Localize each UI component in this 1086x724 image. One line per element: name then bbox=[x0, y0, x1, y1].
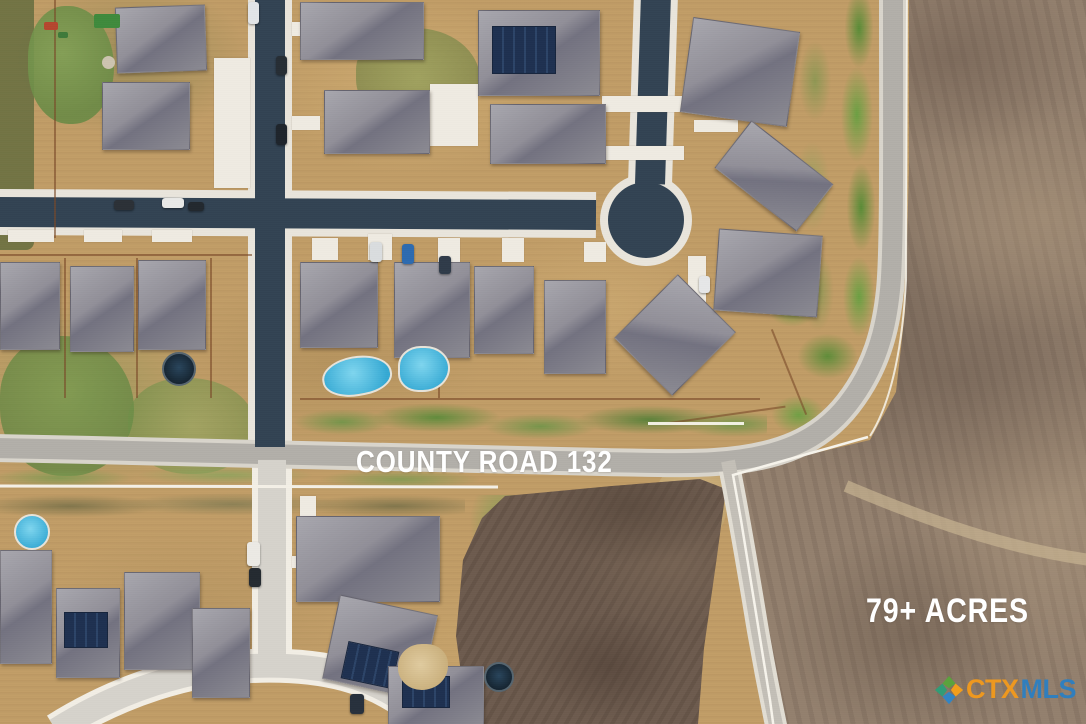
car bbox=[439, 256, 451, 274]
above-ground-pool bbox=[162, 352, 196, 386]
house-roof bbox=[490, 104, 606, 164]
house-roof bbox=[0, 550, 52, 664]
house-roof bbox=[300, 262, 378, 348]
logo-ctx-text: CTX bbox=[966, 674, 1019, 705]
driveway bbox=[430, 84, 478, 146]
playground-equipment bbox=[58, 32, 68, 38]
house-roof bbox=[124, 572, 200, 670]
car bbox=[249, 568, 261, 587]
car bbox=[188, 202, 204, 211]
house-roof bbox=[138, 260, 206, 350]
driveway bbox=[502, 238, 524, 262]
house-roof bbox=[394, 262, 470, 358]
house-roof bbox=[324, 90, 430, 154]
driveway bbox=[152, 230, 192, 242]
solar-panels bbox=[64, 612, 108, 648]
solar-panels bbox=[492, 26, 556, 74]
driveway bbox=[214, 58, 250, 188]
driveway bbox=[600, 146, 684, 160]
backyard-fence bbox=[0, 254, 252, 256]
ctxmls-logo-icon bbox=[934, 675, 964, 705]
county-road-label: COUNTY ROAD 132 bbox=[356, 444, 613, 480]
acreage-label: 79+ ACRES bbox=[866, 592, 1029, 631]
logo-mls-text: MLS bbox=[1021, 674, 1077, 705]
house-roof bbox=[713, 228, 822, 317]
car bbox=[699, 276, 710, 293]
house-roof bbox=[300, 2, 424, 60]
car bbox=[114, 200, 134, 210]
above-ground-pool bbox=[14, 514, 50, 550]
car bbox=[370, 242, 382, 262]
neighborhood-street-horizontal bbox=[0, 212, 596, 215]
driveway bbox=[84, 230, 122, 242]
white-yard-fence bbox=[648, 422, 744, 425]
house-roof bbox=[296, 516, 440, 602]
house-roof bbox=[474, 266, 534, 354]
playground-equipment bbox=[94, 14, 120, 28]
driveway bbox=[584, 242, 606, 262]
car bbox=[247, 542, 260, 566]
house-roof bbox=[70, 266, 134, 352]
house-roof bbox=[544, 280, 606, 374]
backyard-fence bbox=[64, 258, 66, 398]
ctxmls-logo: CTXMLS bbox=[934, 674, 1076, 705]
house-roof bbox=[680, 17, 800, 127]
playground-equipment bbox=[102, 56, 115, 69]
house-roof bbox=[102, 82, 190, 150]
white-fence-line bbox=[0, 486, 498, 487]
driveway bbox=[694, 120, 738, 132]
car bbox=[276, 56, 287, 75]
house-roof bbox=[192, 608, 250, 698]
backyard-fence bbox=[210, 258, 212, 398]
playground-equipment bbox=[44, 22, 58, 30]
house-roof bbox=[0, 262, 60, 350]
backyard-fence bbox=[300, 398, 760, 400]
driveway bbox=[312, 238, 338, 260]
driveway bbox=[292, 116, 320, 130]
aerial-photo: COUNTY ROAD 132 79+ ACRES CTXMLS bbox=[0, 0, 1086, 724]
above-ground-pool bbox=[484, 662, 514, 692]
backyard-fence bbox=[54, 0, 56, 238]
car bbox=[350, 694, 364, 714]
driveway bbox=[602, 96, 686, 112]
car bbox=[402, 244, 414, 264]
cul-de-sac bbox=[608, 182, 684, 258]
car bbox=[248, 2, 259, 24]
driveway bbox=[8, 230, 54, 242]
field-track bbox=[846, 486, 1086, 560]
house-roof bbox=[115, 4, 207, 73]
car bbox=[162, 198, 184, 208]
car bbox=[276, 124, 287, 145]
